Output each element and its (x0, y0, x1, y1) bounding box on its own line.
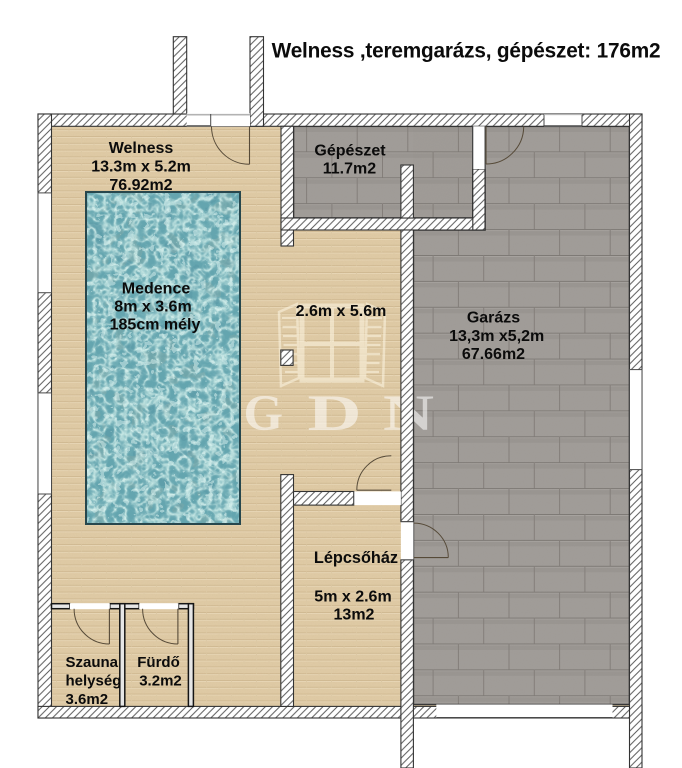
svg-text:13.3m x 5.2m: 13.3m x 5.2m (91, 159, 191, 176)
svg-text:185cm mély: 185cm mély (110, 317, 201, 334)
svg-text:67.66m2: 67.66m2 (462, 346, 525, 363)
svg-text:8m x 3.6m: 8m x 3.6m (114, 299, 191, 316)
svg-text:76.92m2: 76.92m2 (109, 177, 172, 194)
svg-text:G: G (244, 386, 284, 442)
svg-text:3.2m2: 3.2m2 (139, 673, 182, 690)
svg-text:13,3m x5,2m: 13,3m x5,2m (449, 328, 544, 345)
svg-text:5m x 2.6m: 5m x 2.6m (314, 589, 391, 606)
svg-text:13m2: 13m2 (334, 607, 375, 624)
svg-text:Lépcsőház: Lépcsőház (314, 549, 398, 567)
svg-text:Medence: Medence (122, 280, 191, 297)
svg-text:2.6m x 5.6m: 2.6m x 5.6m (296, 303, 387, 320)
svg-text:Szauna: Szauna (66, 654, 119, 671)
svg-text:Garázs: Garázs (467, 310, 520, 327)
svg-text:11.7m2: 11.7m2 (323, 161, 376, 178)
svg-text:3.6m2: 3.6m2 (66, 691, 109, 708)
svg-text:D: D (308, 386, 362, 442)
svg-text:Welness ,teremgarázs, gépészet: Welness ,teremgarázs, gépészet: 176m2 (272, 40, 661, 63)
svg-text:helység: helység (66, 673, 122, 690)
svg-text:Welness: Welness (109, 140, 174, 157)
svg-text:Gépészet: Gépészet (314, 143, 386, 160)
svg-text:Fürdő: Fürdő (137, 654, 180, 671)
